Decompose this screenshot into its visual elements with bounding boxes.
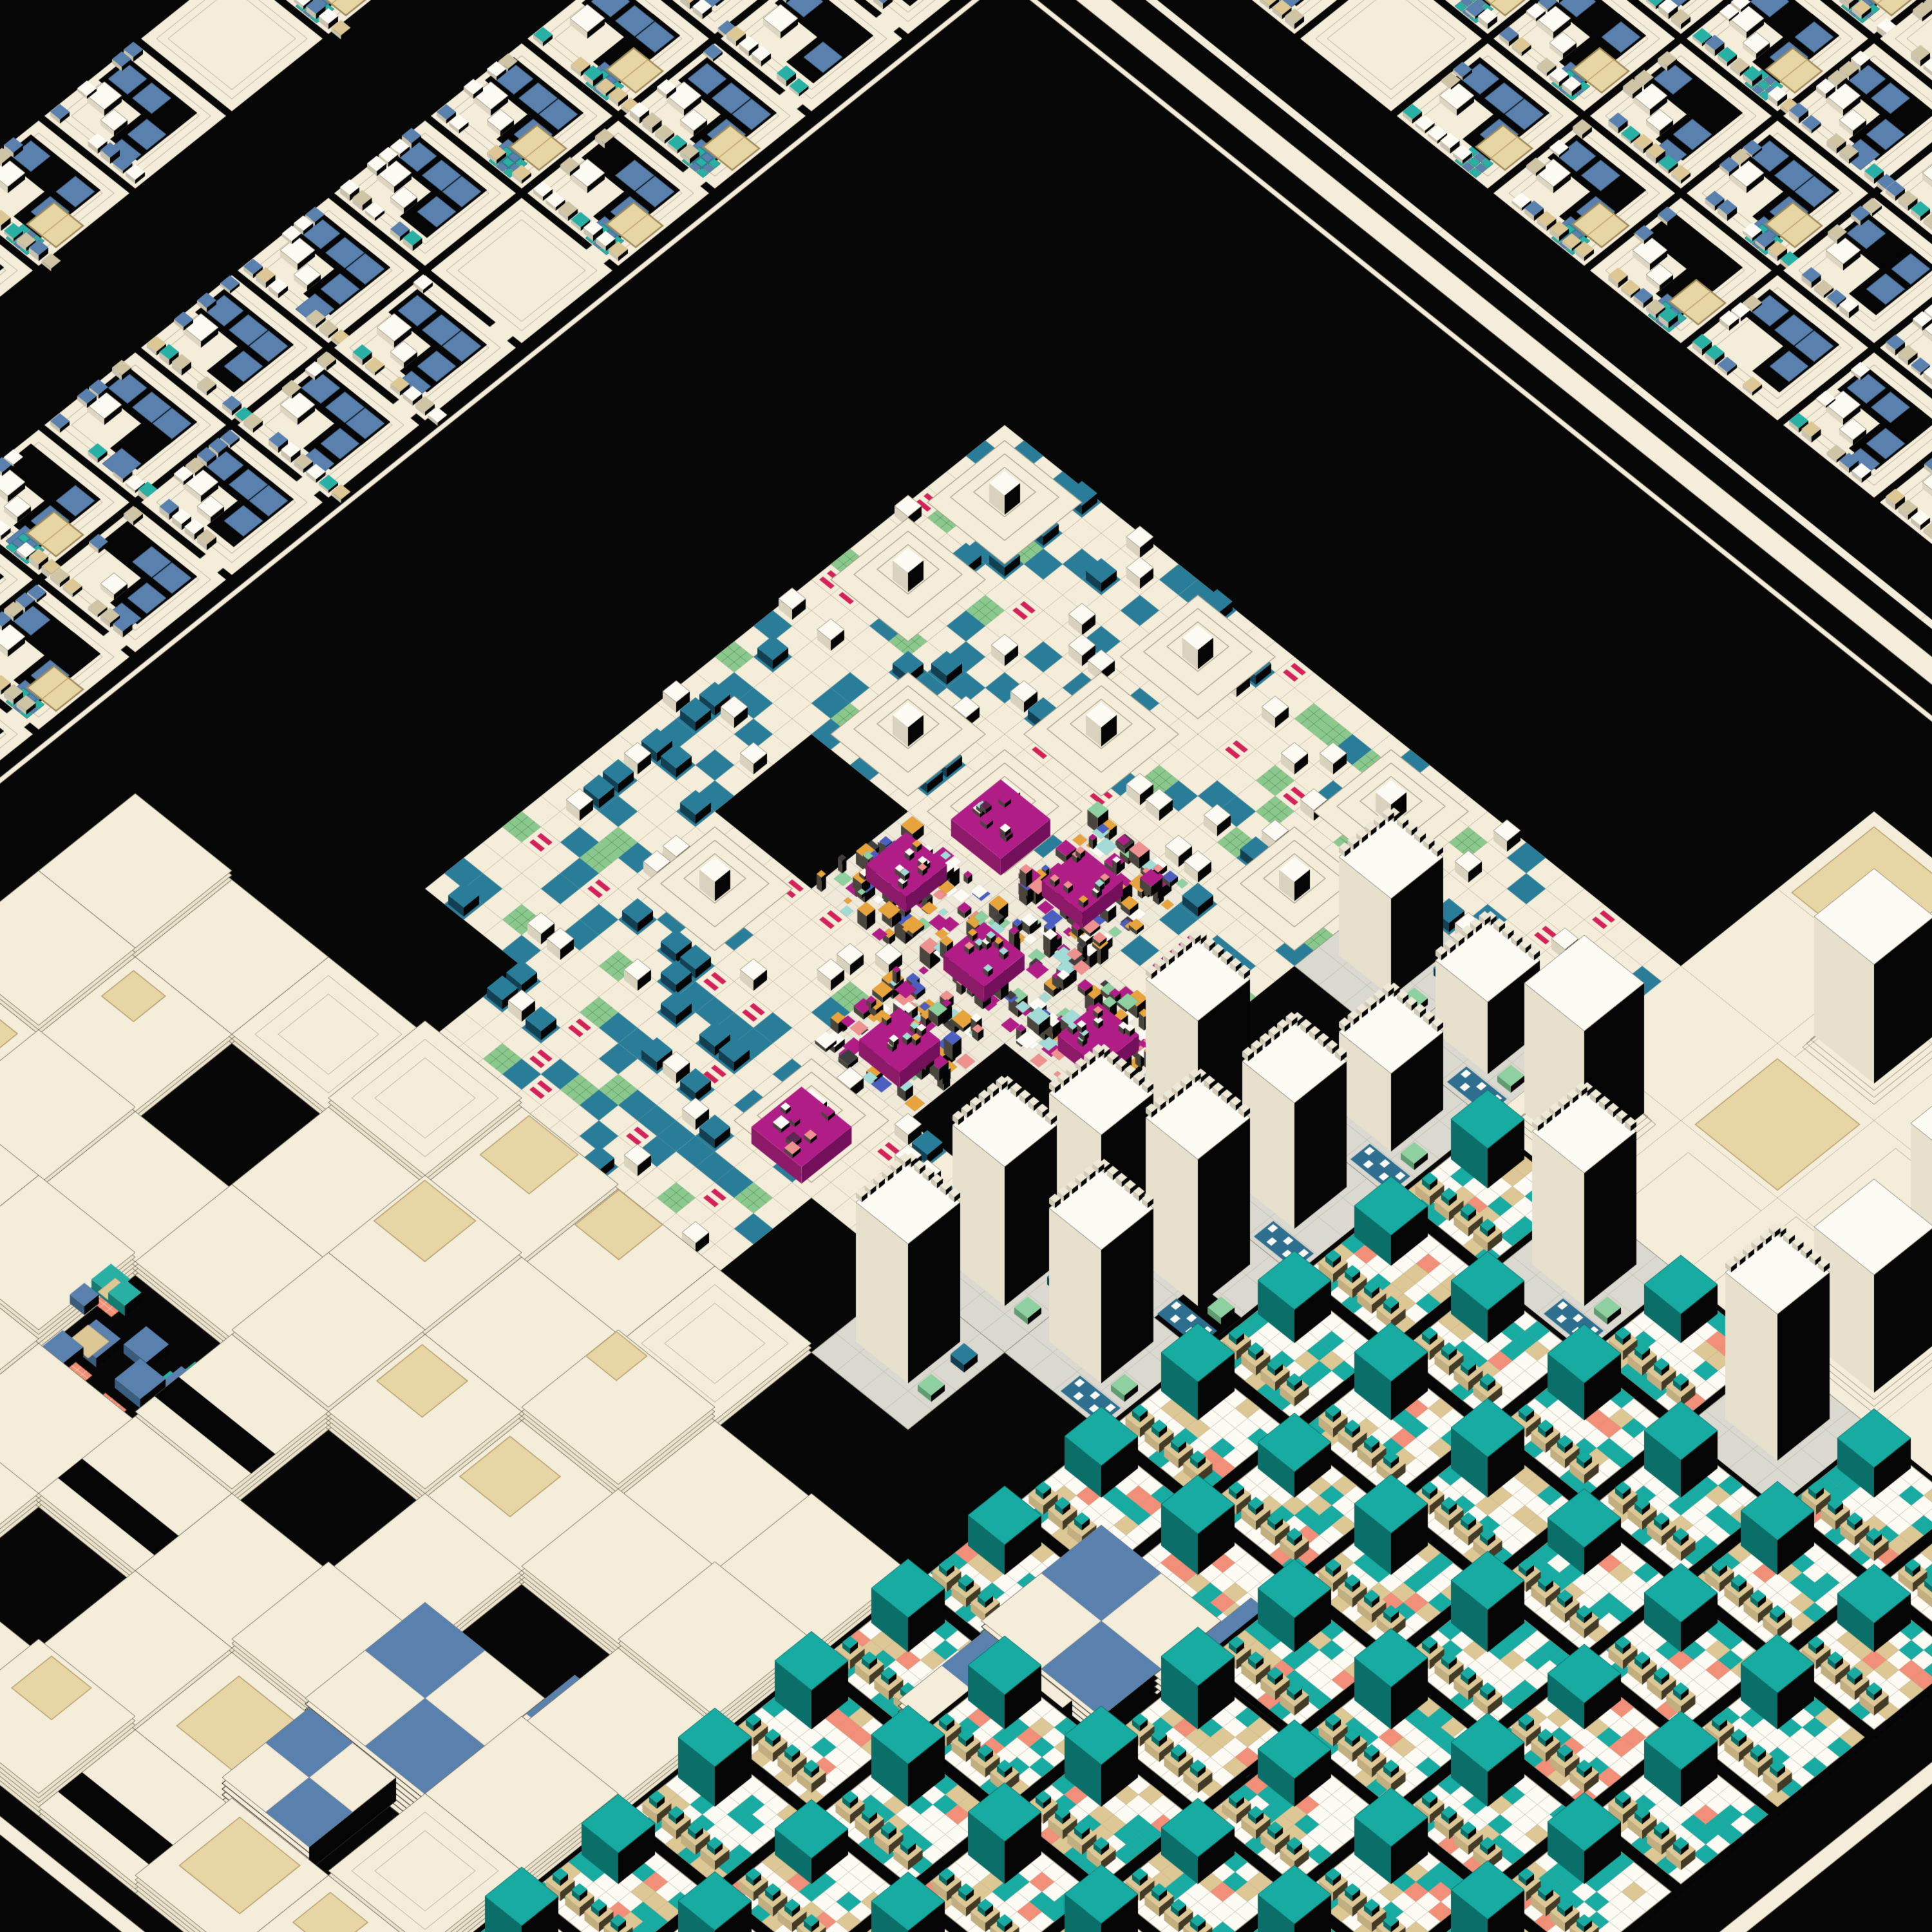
- artwork-frame: [0, 0, 1932, 1932]
- isometric-circuit-city-canvas: [0, 0, 1932, 1932]
